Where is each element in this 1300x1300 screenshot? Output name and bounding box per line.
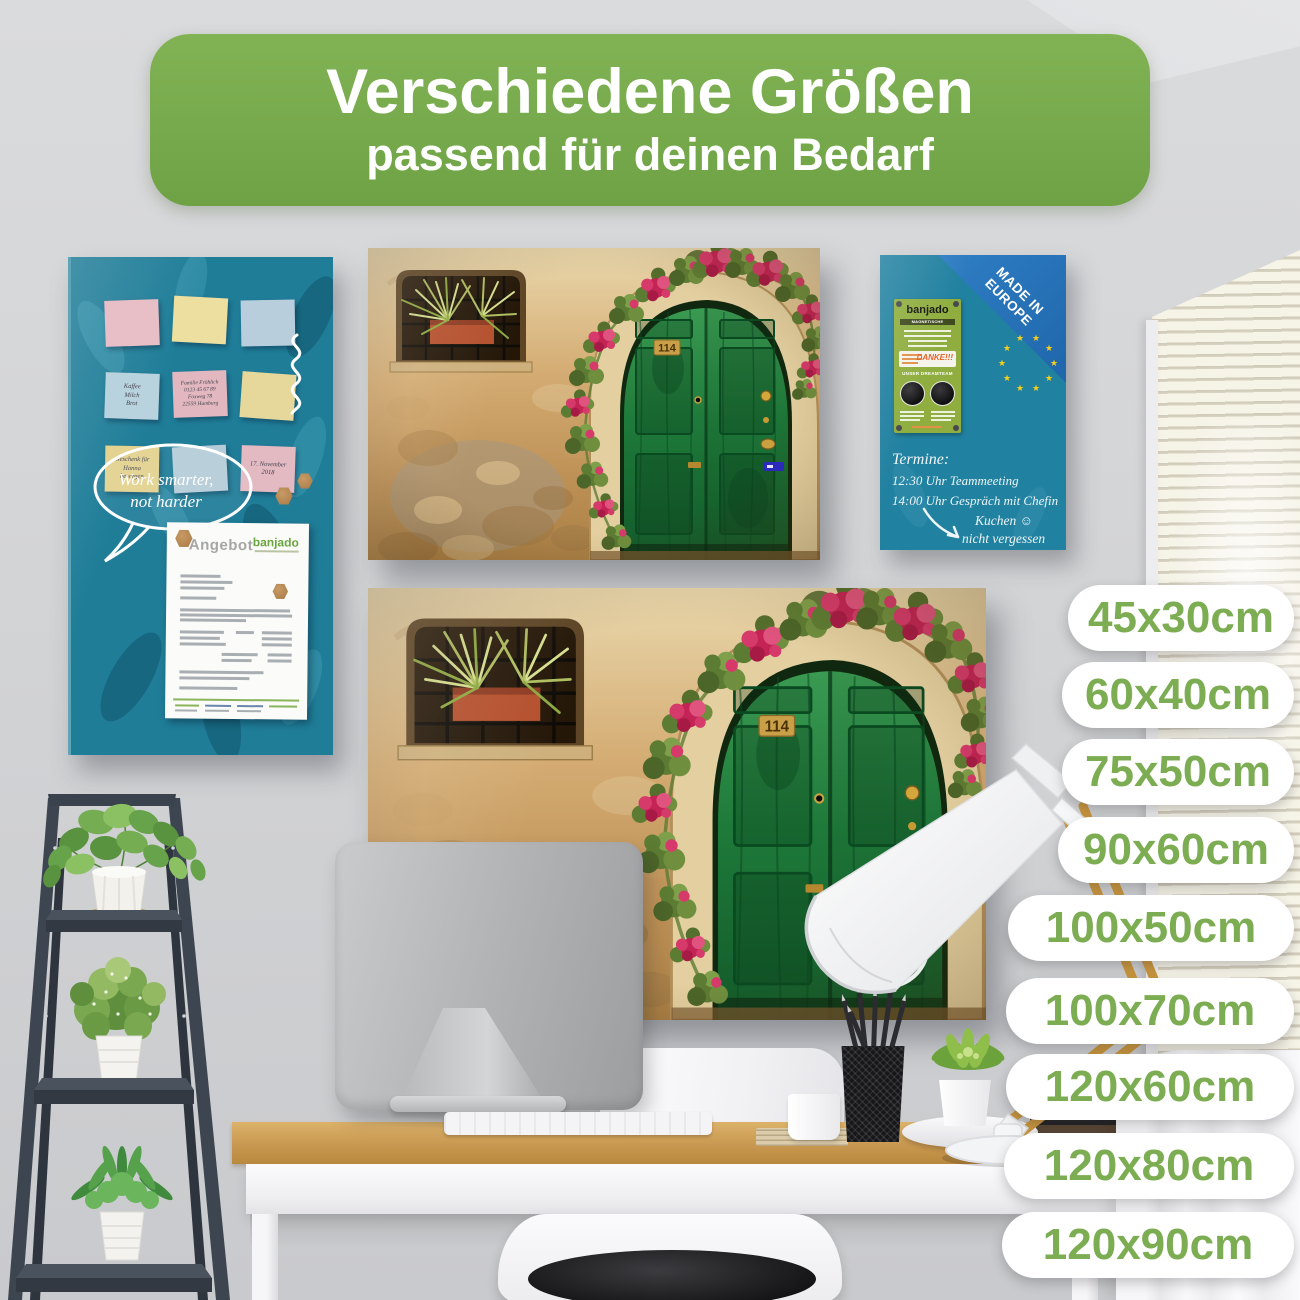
doc-text-bar bbox=[180, 574, 220, 577]
doc-table-bar bbox=[262, 637, 292, 640]
size-pill: 120x60cm bbox=[1006, 1054, 1294, 1120]
size-pill-label: 45x30cm bbox=[1088, 593, 1274, 643]
label-subtitle: MAGNETISCHE MEMOBOARDS bbox=[900, 319, 955, 325]
doc-total-bar bbox=[268, 653, 292, 656]
speech-bubble-text: Work smarter, not harder bbox=[101, 469, 231, 513]
danke-bar bbox=[902, 362, 918, 364]
doc-text-bar bbox=[179, 670, 263, 673]
blue-schedule-board: MADE IN EUROPE ★★★ ★★★ ★★★★ banjado MAGN… bbox=[880, 255, 1066, 550]
doc-text-bar bbox=[179, 676, 249, 679]
doc-footer-col bbox=[205, 705, 231, 707]
document-title: Angebot bbox=[189, 536, 254, 554]
cake-note-line2: nicht vergessen bbox=[962, 531, 1045, 547]
doc-total-bar bbox=[222, 659, 252, 662]
keyboard bbox=[444, 1112, 712, 1135]
cake-note-line1: Kuchen ☺ bbox=[975, 513, 1033, 529]
label-text-bar bbox=[900, 415, 924, 417]
danke-text: DANKE!!! bbox=[917, 353, 953, 362]
sticky-note-text: 17. November 2018 bbox=[249, 460, 286, 478]
danke-box: DANKE!!! bbox=[899, 351, 956, 367]
svg-text:★: ★ bbox=[1032, 334, 1040, 344]
sticky-note-text: Familie Fröhlich 0123 45 67 89 Foxweg 78… bbox=[181, 379, 220, 409]
label-text-bar bbox=[904, 330, 951, 332]
doc-text-bar bbox=[180, 596, 216, 599]
size-pill: 60x40cm bbox=[1062, 662, 1294, 728]
doc-total-bar bbox=[268, 659, 292, 662]
imac-foot bbox=[390, 1096, 566, 1112]
svg-text:★: ★ bbox=[998, 359, 1006, 369]
smiley-icon: ☺ bbox=[1020, 513, 1033, 528]
size-pill-label: 100x70cm bbox=[1045, 986, 1255, 1036]
eu-stars-icon: ★★★ ★★★ ★★★★ bbox=[990, 325, 1066, 401]
scene: 114 bbox=[0, 0, 1300, 1300]
hex-magnet bbox=[272, 583, 288, 599]
svg-text:★: ★ bbox=[1003, 374, 1011, 384]
banjado-label: banjado MAGNETISCHE MEMOBOARDS DANKE!!! … bbox=[894, 299, 961, 433]
doc-text-bar bbox=[180, 586, 224, 589]
doc-footer-col bbox=[237, 705, 263, 707]
doc-table-bar bbox=[236, 631, 254, 634]
teal-memo-board: Kaffee Milch Brot Familie Fröhlich 0123 … bbox=[68, 257, 333, 755]
size-pill-label: 60x40cm bbox=[1085, 670, 1271, 720]
schedule-text: Termine: 12:30 Uhr Teammeeting 14:00 Uhr… bbox=[892, 451, 1058, 513]
doc-footer-col bbox=[175, 709, 197, 711]
doc-footer-col bbox=[269, 705, 297, 707]
schedule-line: 14:00 Uhr Gespräch mit Chefin bbox=[892, 493, 1058, 509]
svg-text:★: ★ bbox=[1016, 334, 1024, 344]
label-text-bar bbox=[900, 411, 924, 413]
banjado-logo: banjado bbox=[894, 304, 961, 316]
size-pill-label: 75x50cm bbox=[1085, 747, 1271, 797]
svg-text:★: ★ bbox=[1003, 344, 1011, 354]
size-pill-label: 100x50cm bbox=[1046, 903, 1256, 953]
size-pill-label: 90x60cm bbox=[1083, 825, 1269, 875]
sticky-note bbox=[104, 299, 160, 347]
angebot-document: Angebot banjado bbox=[165, 522, 309, 719]
schedule-heading: Termine: bbox=[892, 451, 1058, 469]
doc-text-bar bbox=[180, 613, 292, 617]
doc-total-bar bbox=[222, 653, 258, 656]
sticky-note-text: Kaffee Milch Brot bbox=[123, 383, 141, 409]
size-pill-label: 120x60cm bbox=[1045, 1062, 1255, 1112]
size-pill: 120x90cm bbox=[1002, 1212, 1294, 1278]
banjado-logo: banjado bbox=[253, 535, 299, 549]
plant-fern bbox=[69, 1144, 176, 1260]
doc-text-bar bbox=[180, 608, 290, 612]
sticky-note: Familie Fröhlich 0123 45 67 89 Foxweg 78… bbox=[172, 370, 228, 418]
svg-text:★: ★ bbox=[1045, 374, 1053, 384]
banner-subtitle: passend für deinen Bedarf bbox=[366, 128, 934, 182]
size-pill-label: 120x90cm bbox=[1043, 1220, 1253, 1270]
doc-table-bar bbox=[180, 642, 226, 645]
chair-cushion bbox=[528, 1250, 816, 1300]
doc-table-bar bbox=[180, 630, 224, 633]
svg-text:★: ★ bbox=[1016, 384, 1024, 394]
desk-leg bbox=[252, 1214, 278, 1300]
doc-table-bar bbox=[262, 631, 292, 634]
header-banner: Verschiedene Größen passend für deinen B… bbox=[150, 34, 1150, 206]
doc-text-bar bbox=[180, 618, 246, 621]
doc-footer-col bbox=[175, 704, 199, 706]
doc-table-bar bbox=[262, 643, 292, 646]
sticky-note bbox=[172, 296, 228, 345]
size-pill: 120x80cm bbox=[1004, 1133, 1294, 1199]
plant-bush bbox=[70, 957, 166, 1082]
label-text-bar bbox=[931, 419, 951, 421]
label-text-bar bbox=[908, 345, 947, 347]
doc-table-bar bbox=[180, 636, 220, 639]
size-pill-label: 120x80cm bbox=[1044, 1141, 1254, 1191]
door-artwork bbox=[368, 248, 820, 560]
doc-text-bar bbox=[179, 686, 237, 689]
svg-text:★: ★ bbox=[1050, 359, 1058, 369]
size-pill: 100x70cm bbox=[1006, 978, 1294, 1044]
team-text: UNSER DREAMTEAM bbox=[894, 371, 961, 376]
doc-text-bar bbox=[180, 580, 232, 583]
doc-footer-rule bbox=[173, 698, 299, 701]
size-pill: 90x60cm bbox=[1058, 817, 1294, 883]
dog-photo bbox=[900, 381, 925, 406]
logo-subline bbox=[255, 550, 299, 552]
label-magnet bbox=[896, 425, 902, 431]
banner-title: Verschiedene Größen bbox=[326, 58, 974, 127]
squiggle-icon bbox=[283, 333, 309, 415]
ladder-shelf bbox=[8, 778, 230, 1300]
label-text-bar bbox=[912, 426, 942, 428]
label-magnet bbox=[953, 425, 959, 431]
doc-footer-col bbox=[237, 710, 261, 712]
sticky-note: Kaffee Milch Brot bbox=[104, 372, 160, 420]
label-text-bar bbox=[904, 335, 951, 337]
door-picture-board-small bbox=[368, 248, 820, 560]
label-text-bar bbox=[900, 419, 920, 421]
doc-footer-col bbox=[205, 710, 229, 712]
label-text-bar bbox=[908, 340, 947, 342]
label-text-bar bbox=[931, 415, 955, 417]
cake-text: Kuchen bbox=[975, 513, 1016, 528]
svg-text:★: ★ bbox=[1032, 384, 1040, 394]
size-pill: 100x50cm bbox=[1008, 895, 1294, 961]
label-text-bar bbox=[931, 411, 955, 413]
schedule-line: 12:30 Uhr Teammeeting bbox=[892, 473, 1058, 489]
arrow-icon bbox=[918, 507, 968, 545]
svg-text:★: ★ bbox=[1045, 344, 1053, 354]
size-pill: 75x50cm bbox=[1062, 739, 1294, 805]
dog-photo bbox=[930, 381, 955, 406]
size-pill: 45x30cm bbox=[1068, 585, 1294, 651]
